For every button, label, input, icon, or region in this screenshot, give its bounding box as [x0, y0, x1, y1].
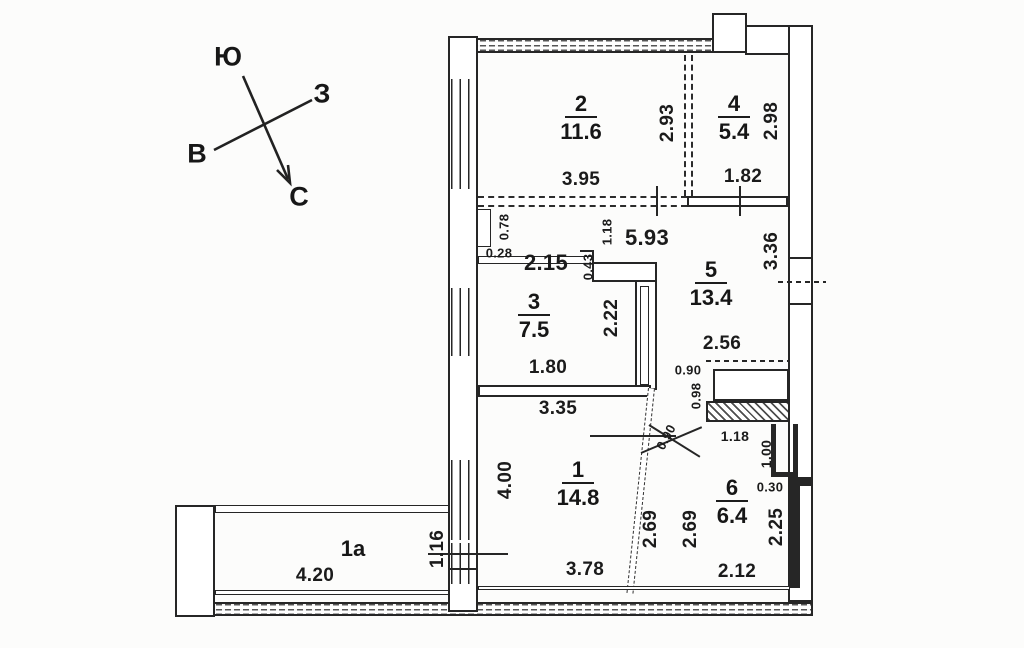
partition-rooms-2-4	[684, 55, 693, 196]
room-4-number: 4	[718, 92, 750, 118]
room-6-area: 6.4	[704, 504, 760, 527]
dim-balcony-length: 4.20	[296, 565, 334, 587]
dim-room4-width: 1.82	[724, 166, 762, 188]
closet-body	[713, 369, 789, 401]
dim-room3-length: 3.35	[539, 398, 577, 420]
room-3-area: 7.5	[506, 318, 562, 341]
room-5-number: 5	[695, 258, 727, 284]
window-left-2	[451, 288, 475, 356]
dim-niche-width: 0.28	[486, 246, 513, 261]
compass: Ю З В С	[170, 30, 345, 220]
window-left-1	[451, 79, 475, 189]
dim-niche6-width: 1.18	[721, 428, 749, 444]
compass-west-label: З	[314, 79, 331, 110]
room-6-label: 6 6.4	[704, 476, 760, 527]
dim-wall-step: 0.43	[581, 254, 596, 281]
compass-south-label: Ю	[214, 42, 242, 73]
closet-dashed-top	[706, 360, 790, 362]
niche-bracket	[478, 209, 491, 247]
room-5-area: 13.4	[678, 286, 744, 309]
wall-L-horizontal	[592, 262, 657, 282]
dim-corridor-length: 5.93	[625, 225, 669, 251]
room-1-area: 14.8	[546, 486, 610, 509]
room-4-label: 4 5.4	[705, 92, 763, 143]
closet-wall-hatch	[706, 401, 790, 422]
balcony-end-block	[175, 505, 215, 617]
dim-room2-width: 3.95	[562, 169, 600, 191]
compass-north-label: С	[289, 182, 309, 213]
dim-closet-opening: 0.90	[675, 363, 702, 378]
door-jamb-tick-1	[656, 186, 658, 216]
dim-room6-width: 2.12	[718, 561, 756, 583]
dim-room2-depth: 2.93	[657, 104, 679, 142]
balcony-door-tick-2	[448, 568, 478, 570]
balcony-glazing-top	[215, 505, 449, 513]
wall-room3-bottom	[478, 385, 651, 397]
room-2-number: 2	[565, 92, 597, 118]
room-4-area: 5.4	[705, 120, 763, 143]
window-right-jamb-top	[788, 257, 813, 259]
room-1a-number: 1а	[341, 537, 365, 560]
outer-wall-top-step	[712, 13, 747, 53]
wall-corridor-solid	[687, 196, 788, 207]
room-2-label: 2 11.6	[549, 92, 613, 143]
outer-wall-bottom	[175, 602, 813, 616]
dim-room5-side: 3.36	[761, 232, 783, 270]
door-jamb-tick-2	[739, 186, 741, 216]
dim-room1-depth: 4.00	[495, 461, 517, 499]
balcony-door-left	[451, 543, 475, 584]
floor-plan: Ю З В С	[0, 0, 1024, 648]
window-left-3	[451, 460, 475, 540]
partition-diagonal	[626, 388, 654, 594]
dim-partition-left: 2.69	[640, 510, 662, 548]
room-3-number: 3	[518, 290, 550, 316]
dim-room4-depth: 2.98	[761, 102, 783, 140]
dim-room1-width: 3.78	[566, 559, 604, 581]
dim-hall-width: 2.15	[524, 250, 568, 276]
dim-closet-depth: 0.98	[689, 383, 704, 410]
wall-room6-right	[789, 477, 800, 588]
wall-step-tick-h	[580, 250, 594, 252]
dim-room6-depth: 2.25	[766, 508, 788, 546]
room-3-label: 3 7.5	[506, 290, 562, 341]
dim-room3-wall: 2.22	[601, 299, 623, 337]
room-5-label: 5 13.4	[678, 258, 744, 309]
outer-wall-top	[448, 38, 714, 53]
dim-partition-right: 2.69	[680, 510, 702, 548]
dim-niche6-depth: 1.00	[758, 440, 774, 468]
compass-east-label: В	[187, 139, 207, 170]
dim-niche-depth: 0.78	[497, 214, 512, 241]
room-6-number: 6	[716, 476, 748, 502]
room-1-number: 1	[562, 458, 594, 484]
dim-balcony-width: 1.16	[427, 530, 449, 568]
duct-strip	[640, 286, 649, 385]
dim-ledge: 0.30	[757, 480, 784, 495]
dim-corridor-width: 1.18	[600, 219, 615, 246]
window-right-centerline	[778, 281, 826, 283]
duct-niche-right	[793, 424, 798, 477]
room-1-label: 1 14.8	[546, 458, 610, 509]
room-1a-label: 1а	[332, 537, 374, 561]
dim-room3-width: 1.80	[529, 357, 567, 379]
balcony-inner-bottom	[215, 590, 449, 595]
wall-bottom-inner	[478, 586, 790, 590]
window-right-jamb-bottom	[788, 303, 813, 305]
dim-room5-width: 2.56	[703, 333, 741, 355]
compass-arrows	[170, 30, 345, 220]
room-2-area: 11.6	[549, 120, 613, 143]
wall-ledge	[789, 477, 813, 486]
